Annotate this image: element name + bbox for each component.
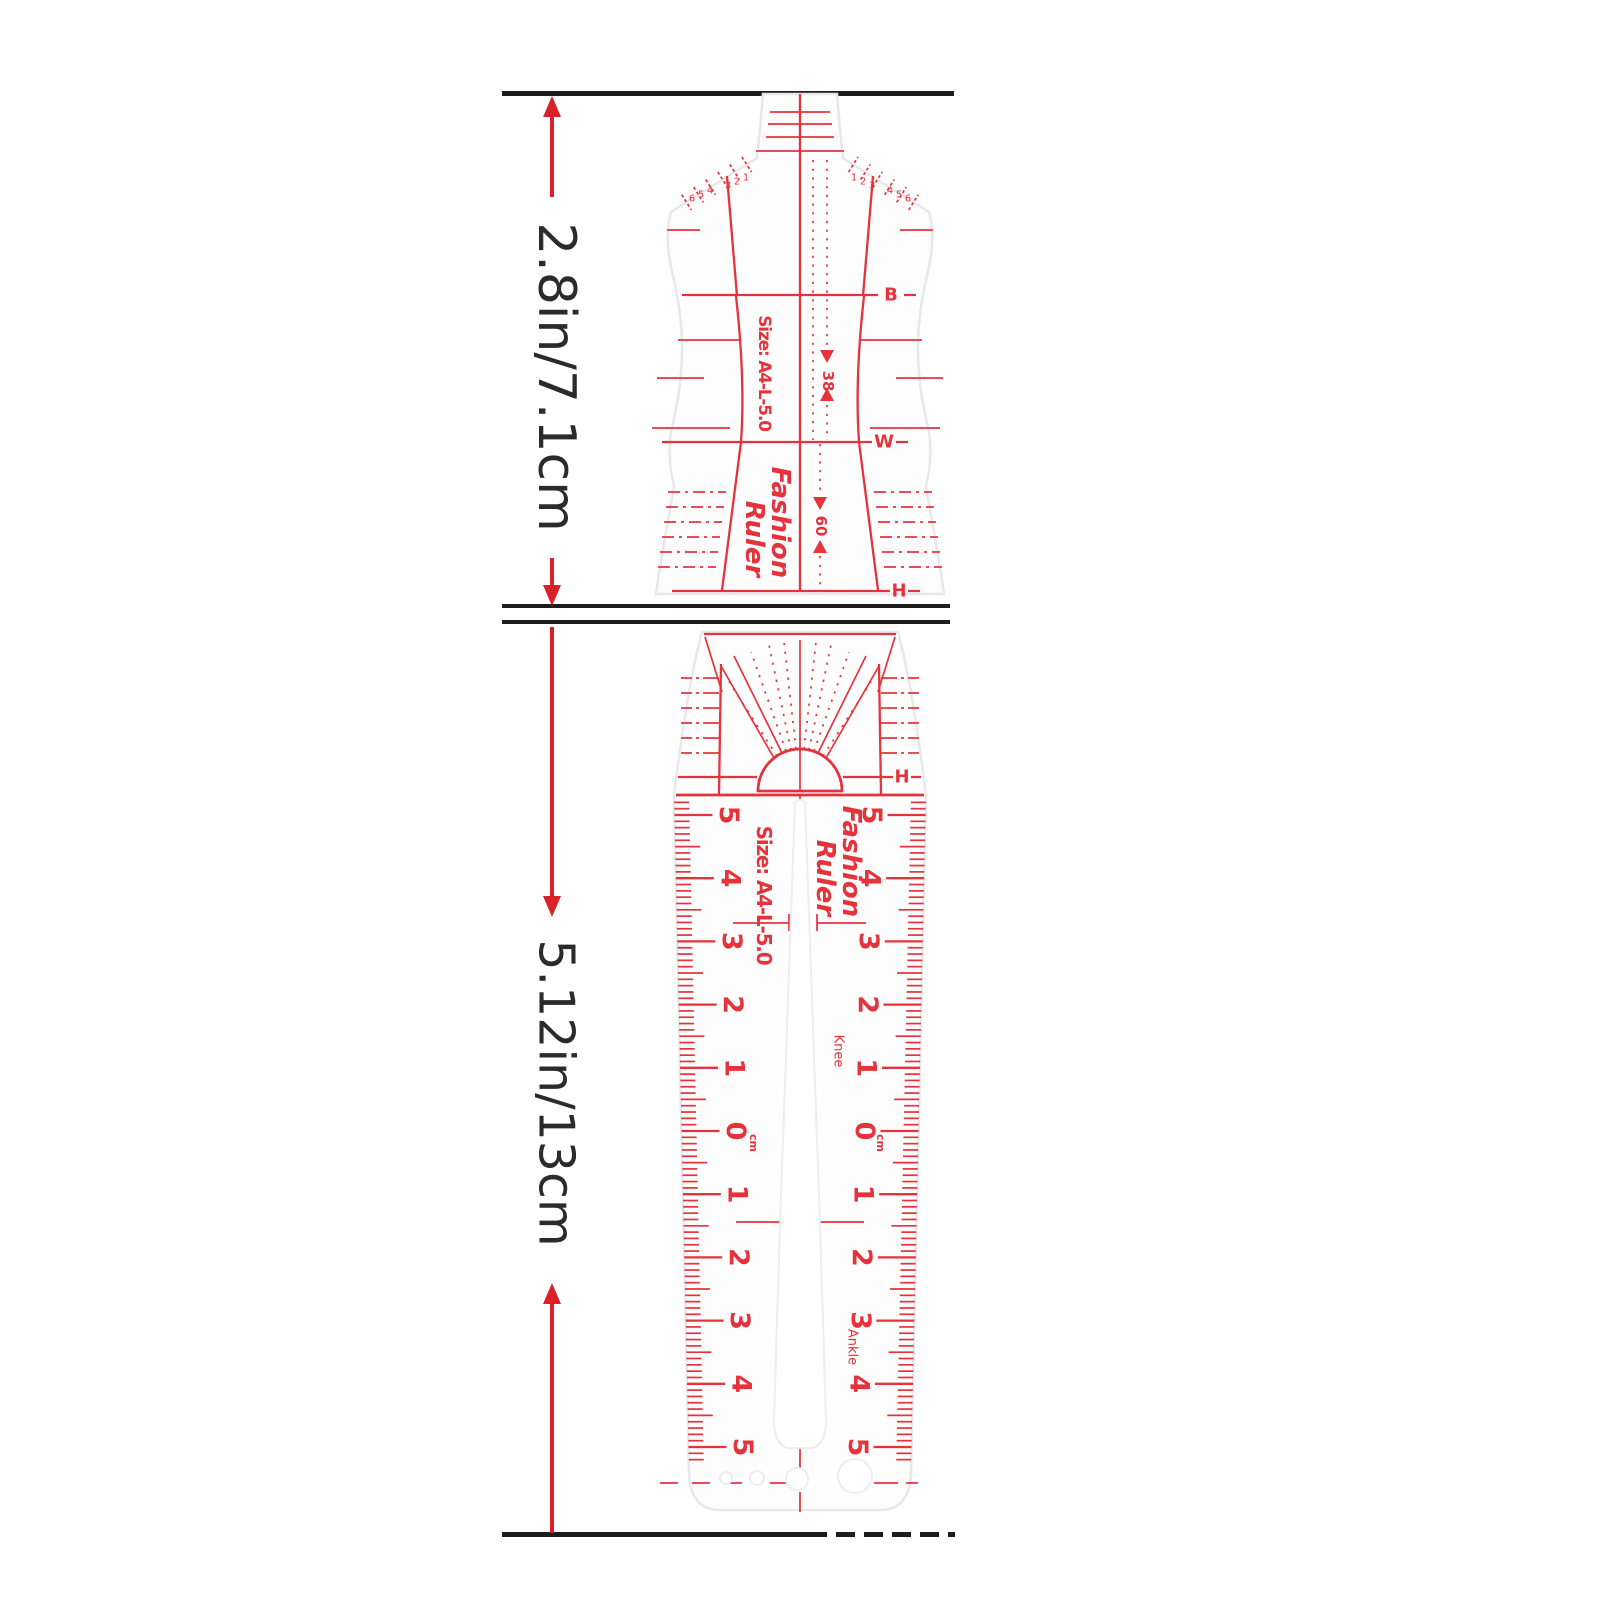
punch-hole [750,1471,764,1485]
ankle-label: Ankle [845,1329,860,1365]
shoulder-number: 4 [887,186,893,197]
size-label: Size: A4-L-5.0 [752,826,776,965]
ruler-graphics: 38 60 B W H Size: A4-L-5.0 Fashion Ruler… [0,0,1600,1600]
hip-label: H [891,581,906,602]
scale-number-right: 4 [843,1374,874,1393]
scale-number-right: 2 [846,1248,877,1267]
bust-label: B [884,285,898,306]
scale-number-left: 4 [726,1374,757,1393]
scale-number-left: 0 [720,1122,751,1141]
shoulder-number: 5 [698,190,704,201]
leg-ruler: H Size: A4-L-5.0 Fashion Ruler Knee Ankl… [660,632,926,1512]
shoulder-number: 3 [725,181,731,192]
knee-label: Knee [831,1035,846,1068]
shoulder-number: 5 [896,190,902,201]
unit-label: cm [874,1134,887,1152]
scale-number-left: 5 [727,1438,758,1457]
shoulder-number: 2 [734,177,740,188]
scale-number-right: 1 [848,1185,879,1204]
hip-value: 60 [812,516,830,537]
scale-number-right: 5 [842,1438,873,1457]
scale-number-right: 1 [850,1058,881,1077]
scale-number-left: 3 [724,1311,755,1330]
scale-number-left: 1 [721,1185,752,1204]
punch-hole [838,1459,872,1493]
shoulder-number: 6 [905,194,911,205]
scale-number-left: 4 [714,869,745,888]
scale-number-left: 5 [713,806,744,825]
scale-number-left: 2 [717,995,748,1014]
shoulder-number: 6 [689,194,695,205]
shoulder-number: 1 [851,173,857,184]
scale-number-right: 5 [856,806,887,825]
scale-number-right: 4 [855,869,886,888]
punch-hole [786,1468,808,1490]
product-image: 2.8in/7.1cm 5.12in/13cm [0,0,1600,1600]
waist-label: W [874,432,894,453]
scale-number-left: 2 [723,1248,754,1267]
scale-number-right: 3 [853,932,884,951]
shoulder-number: 3 [869,181,875,192]
scale-number-right: 2 [852,995,883,1014]
scale-number-left: 1 [719,1058,750,1077]
bust-value: 38 [819,371,837,392]
unit-label: cm [747,1134,760,1152]
scale-number-right: 3 [845,1311,876,1330]
hip-label: H [894,767,909,788]
bodice-ruler: 38 60 B W H Size: A4-L-5.0 Fashion Ruler… [652,94,944,602]
shoulder-number: 2 [860,177,866,188]
scale-number-left: 3 [716,932,747,951]
shoulder-number: 1 [743,173,749,184]
punch-hole [720,1472,732,1484]
shoulder-number: 4 [707,186,713,197]
size-label: Size: A4-L-5.0 [754,315,774,432]
